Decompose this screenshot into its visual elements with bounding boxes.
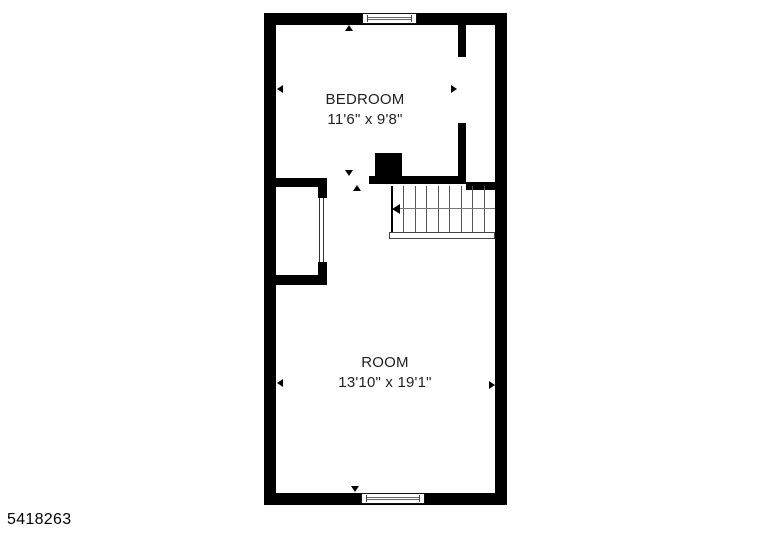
window-glass — [366, 497, 420, 500]
room-name: ROOM — [315, 353, 455, 373]
closet-sliding-door — [319, 198, 324, 262]
bottom-wall-window — [361, 493, 425, 504]
plan-id: 5418263 — [7, 511, 71, 529]
closet-top-stub — [318, 187, 327, 198]
stair-tread — [439, 186, 450, 232]
stair-tread — [404, 186, 415, 232]
bedroom-right-wall-upper — [458, 25, 466, 57]
bedroom-dimension-arrow-right-icon — [451, 85, 457, 93]
top-wall-window — [362, 13, 417, 24]
chimney-block — [375, 153, 402, 178]
staircase-treads — [391, 186, 495, 232]
stair-tread — [462, 186, 473, 232]
window-frame-post — [366, 495, 367, 502]
bedroom-right-wall-lower — [458, 123, 466, 184]
window-glass — [367, 17, 412, 20]
stair-landing-strip — [389, 232, 495, 239]
bedroom-label: BEDROOM 11'6" x 9'8" — [295, 90, 435, 130]
room-dimension-arrow-bottom-icon — [351, 486, 359, 492]
bedroom-dimension-arrow-left-icon — [277, 85, 283, 93]
closet-bottom-stub — [318, 262, 327, 275]
room-dimension-arrow-top-icon — [353, 185, 361, 191]
bedroom-dimensions: 11'6" x 9'8" — [295, 110, 435, 130]
stair-tread — [473, 186, 484, 232]
stair-tread — [485, 186, 495, 232]
stair-tread — [416, 186, 427, 232]
stair-tread — [450, 186, 461, 232]
room-dimensions: 13'10" x 19'1" — [315, 373, 455, 393]
window-frame-post — [419, 495, 420, 502]
room-label: ROOM 13'10" x 19'1" — [315, 353, 455, 393]
window-frame-post — [411, 15, 412, 22]
bedroom-dimension-arrow-top-icon — [345, 25, 353, 31]
room-dimension-arrow-right-icon — [489, 381, 495, 389]
closet-bottom-wall — [264, 275, 327, 285]
room-dimension-arrow-left-icon — [277, 379, 283, 387]
bedroom-dimension-arrow-bottom-icon — [345, 170, 353, 176]
stair-run-line — [394, 208, 495, 209]
closet-top-wall — [264, 178, 327, 187]
outer-wall-left — [264, 13, 276, 505]
window-frame-post — [367, 15, 368, 22]
bedroom-name: BEDROOM — [295, 90, 435, 110]
stair-direction-arrow-icon — [392, 204, 400, 214]
outer-wall-right — [495, 13, 507, 505]
stair-tread — [427, 186, 438, 232]
